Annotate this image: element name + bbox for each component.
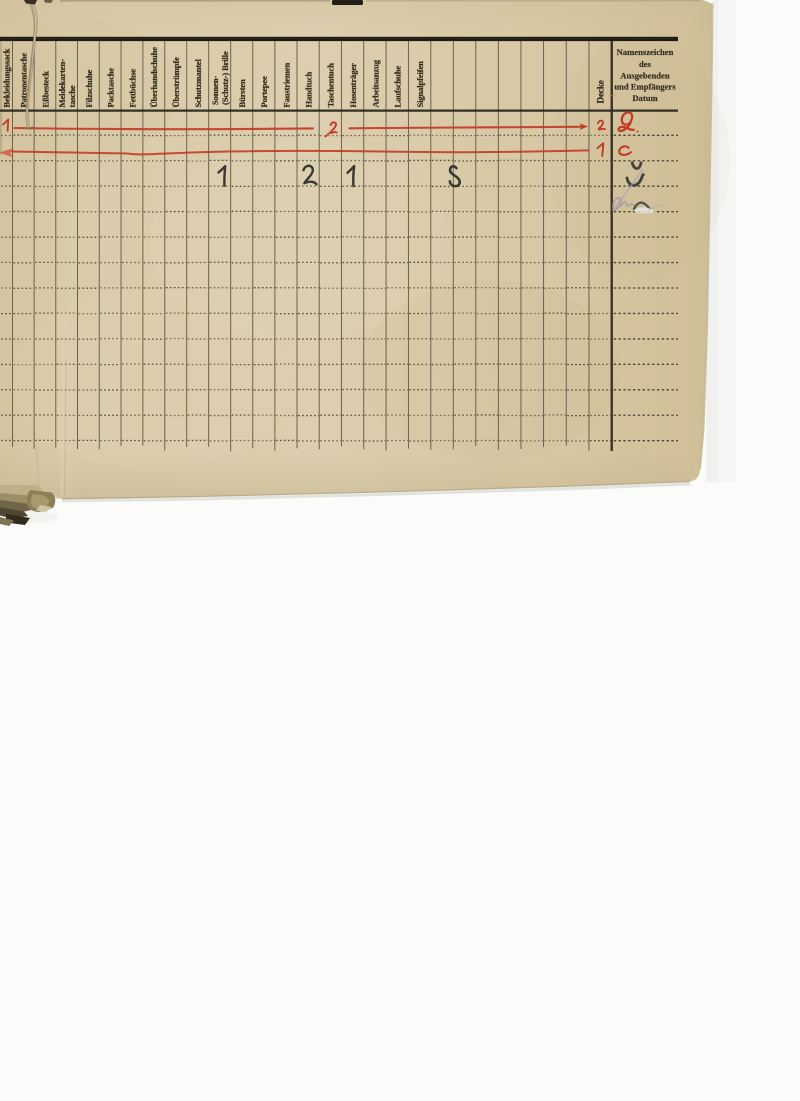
svg-text:Sonnen-: Sonnen- <box>210 76 220 105</box>
svg-text:Meldekarten-: Meldekarten- <box>57 59 67 108</box>
svg-text:Decke: Decke <box>596 80 606 103</box>
svg-text:Filzschuhe: Filzschuhe <box>84 70 94 108</box>
svg-text:Eßbesteck: Eßbesteck <box>40 71 50 108</box>
svg-text:Packtasche: Packtasche <box>106 68 116 108</box>
svg-text:Schutzmantel: Schutzmantel <box>193 58 203 107</box>
svg-text:Signalpfeifen: Signalpfeifen <box>415 61 425 108</box>
svg-text:Überstrümpfe: Überstrümpfe <box>171 57 181 108</box>
svg-text:Taschentuch: Taschentuch <box>326 63 336 108</box>
svg-text:Überhandschuhe: Überhandschuhe <box>149 47 159 108</box>
svg-text:Laufschuhe: Laufschuhe <box>393 66 403 108</box>
svg-text:Fettbüchse: Fettbüchse <box>127 69 137 108</box>
svg-text:Handtuch: Handtuch <box>304 72 314 108</box>
svg-text:Hosenträger: Hosenträger <box>348 63 358 108</box>
svg-text:Bekleidungssack: Bekleidungssack <box>2 48 12 107</box>
svg-text:Datum: Datum <box>632 93 658 103</box>
svg-text:des: des <box>639 59 652 69</box>
svg-text:Bürsten: Bürsten <box>237 79 247 107</box>
svg-text:(Schutz-) Brille: (Schutz-) Brille <box>220 51 230 105</box>
svg-text:Portepee: Portepee <box>259 76 269 108</box>
svg-text:tasche: tasche <box>67 85 77 107</box>
svg-text:und Empfängers: und Empfängers <box>614 82 676 92</box>
svg-text:Ausgebenden: Ausgebenden <box>620 71 669 81</box>
svg-text:Faustriemen: Faustriemen <box>281 62 291 107</box>
svg-text:Namenszeichen: Namenszeichen <box>617 47 674 57</box>
svg-text:Arbeitsanzug: Arbeitsanzug <box>370 59 380 107</box>
